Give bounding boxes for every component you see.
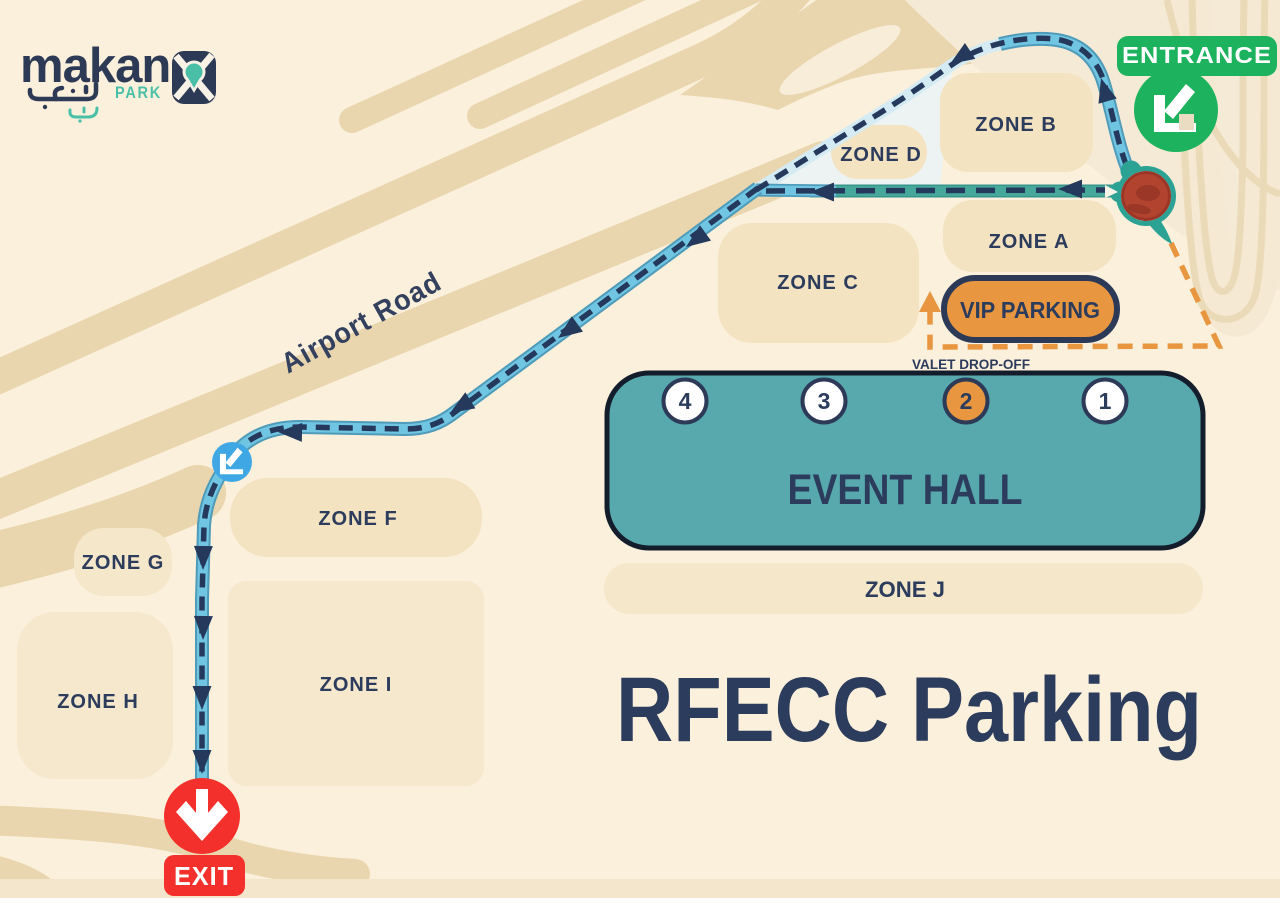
svg-text:4: 4	[679, 388, 692, 414]
svg-text:EXIT: EXIT	[174, 861, 234, 891]
svg-text:ZONE D: ZONE D	[840, 144, 922, 166]
svg-text:2: 2	[960, 388, 973, 414]
svg-text:ZONE B: ZONE B	[975, 114, 1057, 136]
svg-text:VALET DROP-OFF: VALET DROP-OFF	[912, 357, 1030, 372]
svg-text:VIP PARKING: VIP PARKING	[960, 297, 1100, 323]
svg-text:RFECC Parking: RFECC Parking	[616, 659, 1202, 761]
svg-text:ZONE G: ZONE G	[82, 552, 165, 574]
svg-text:PARK: PARK	[115, 83, 162, 102]
svg-text:1: 1	[1099, 388, 1112, 414]
svg-text:ZONE F: ZONE F	[318, 508, 397, 530]
svg-text:ZONE I: ZONE I	[320, 674, 393, 696]
svg-text:ZONE C: ZONE C	[777, 272, 859, 294]
svg-text:ENTRANCE: ENTRANCE	[1122, 42, 1272, 68]
svg-text:ZONE J: ZONE J	[865, 577, 945, 602]
svg-text:ZONE H: ZONE H	[57, 691, 139, 713]
svg-text:3: 3	[818, 388, 831, 414]
svg-text:EVENT HALL: EVENT HALL	[788, 466, 1023, 514]
svg-text:ZONE A: ZONE A	[989, 231, 1070, 253]
